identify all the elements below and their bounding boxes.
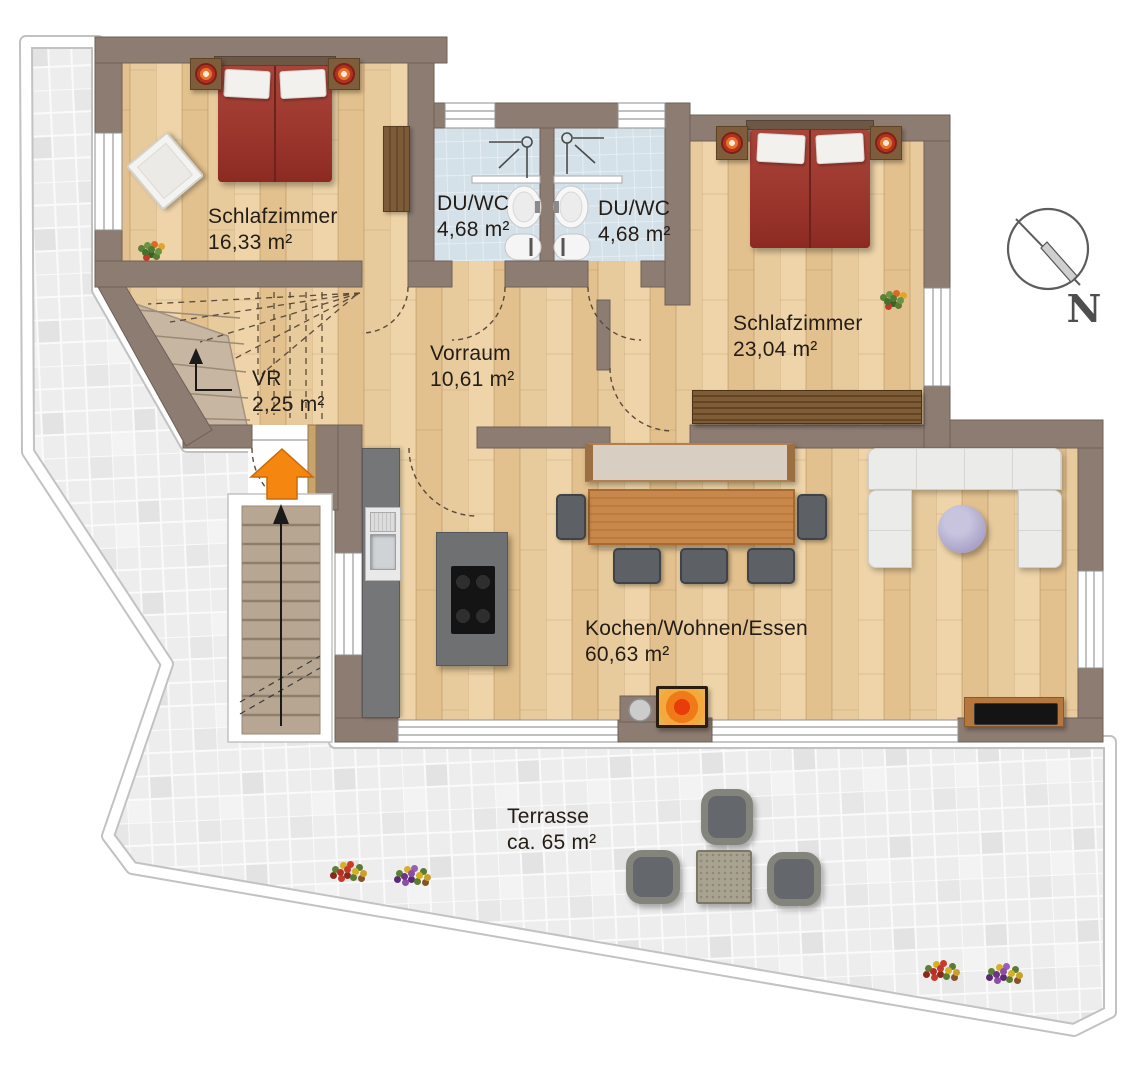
sink [554,186,588,228]
kitchen-island [436,532,508,666]
dining-bench [585,443,795,482]
sink-drainer [370,512,396,532]
sofa-arm [868,490,912,568]
room-area: 60,63 m² [585,643,669,666]
window [618,103,665,128]
terrace-table [696,850,752,904]
dining-chair [613,548,661,584]
terrace-chair [701,789,753,845]
room-name: DU/WC [437,192,509,215]
nightstand [870,126,902,160]
room-label-duwc-2: DU/WC 4,68 m² [598,196,671,248]
room-area: 23,04 m² [733,338,817,361]
room-label-duwc-1: DU/WC 4,68 m² [437,191,510,243]
room-area: 4,68 m² [598,223,671,246]
wall-segment [335,425,362,553]
pillow [815,133,864,164]
flower-pot [408,870,415,877]
bath-shelf [554,176,622,183]
flue-cap [629,699,651,721]
north-compass-icon: N [1008,209,1101,331]
window [95,133,122,230]
external-staircase [228,494,332,742]
wardrobe [383,126,410,212]
room-label-vr: VR 2,25 m² [252,366,325,418]
wall-segment [335,718,398,742]
room-name: Vorraum [430,342,511,365]
plant [148,246,155,253]
window [445,103,495,128]
nightstand [716,126,748,160]
terrace-chair [626,850,680,904]
room-name: Kochen/Wohnen/Essen [585,617,808,640]
room-label-wohnen: Kochen/Wohnen/Essen 60,63 m² [585,616,808,668]
nightstand [190,58,222,90]
flower-pot [1000,968,1007,975]
dining-chair [680,548,728,584]
sofa-arm [1018,490,1062,568]
pillow [223,69,270,99]
floor-vorraum [362,261,690,448]
wall-segment [434,103,445,128]
wall-segment [408,63,434,287]
room-name: VR [252,367,282,390]
dining-chair [556,494,586,540]
lamp-icon [721,132,743,154]
compass-north-label: N [1067,286,1102,331]
plant [890,295,897,302]
wall-segment [495,103,618,128]
room-area: 16,33 m² [208,231,292,254]
room-name: Schlafzimmer [208,205,338,228]
tv [974,703,1058,725]
dining-table [588,489,795,545]
coffee-table [938,505,986,553]
lamp-icon [333,63,355,85]
wardrobe [692,390,922,424]
wall-segment [95,261,362,287]
bed-headboard [746,120,874,130]
wall-segment [1078,448,1103,571]
wall-segment [924,386,950,448]
bath-shelf [472,176,540,183]
toilet [505,234,541,260]
dining-chair [747,548,795,584]
dining-chair [797,494,827,540]
wall-segment [540,128,554,261]
flower-pot [344,866,351,873]
room-area: ca. 65 m² [507,831,596,854]
window [398,720,630,742]
floor-plan: N Schlafzimmer 16,33 m² DU/WC 4,68 m² DU… [0,0,1143,1080]
window [1078,571,1103,668]
wall-segment [924,141,950,288]
room-label-vorraum: Vorraum 10,61 m² [430,341,514,393]
cooktop [451,566,495,634]
room-area: 10,61 m² [430,368,514,391]
room-name: Schlafzimmer [733,312,863,335]
flower-pot [937,965,944,972]
wall-segment [1078,668,1103,720]
wall-segment [408,261,452,287]
bed-headboard [214,56,336,66]
room-label-terrasse: Terrasse ca. 65 m² [507,804,596,856]
window [335,553,362,655]
window [924,288,950,386]
lamp-icon [195,63,217,85]
kitchen-sink [365,507,401,581]
room-name: DU/WC [598,197,670,220]
toilet [554,234,590,260]
double-bed-1 [218,66,332,182]
wall-segment [950,420,1103,448]
wood-stove [656,686,708,728]
room-label-schlafzimmer-2: Schlafzimmer 23,04 m² [733,311,863,363]
room-label-schlafzimmer-1: Schlafzimmer 16,33 m² [208,204,338,256]
room-area: 2,25 m² [252,393,325,416]
wall-segment [505,261,588,287]
sink [507,186,541,228]
wall-segment [95,63,122,133]
sofa-back [868,448,1062,490]
lamp-icon [875,132,897,154]
sink-basin [370,534,396,570]
pillow [756,133,805,164]
wall-segment [597,300,610,370]
pillow [279,69,326,99]
room-area: 4,68 m² [437,218,510,241]
room-name: Terrasse [507,805,589,828]
nightstand [328,58,360,90]
terrace-chair [767,852,821,906]
window [712,720,958,742]
tv-board [964,697,1064,727]
double-bed-2 [750,130,870,248]
kitchen-counter [362,448,400,718]
